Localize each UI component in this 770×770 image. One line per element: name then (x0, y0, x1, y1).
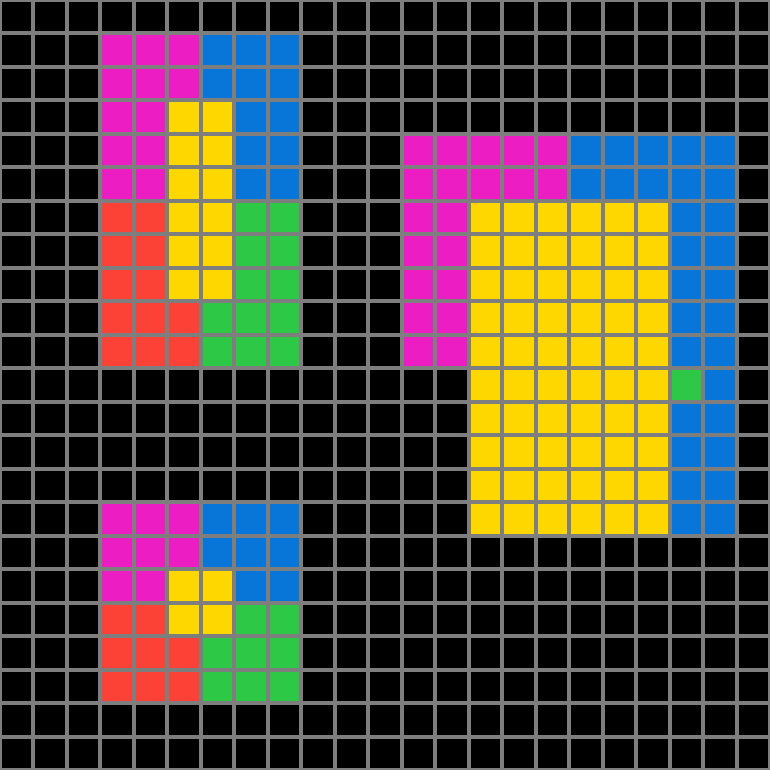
grid-cell[interactable] (270, 638, 299, 667)
grid-cell[interactable] (303, 270, 332, 299)
grid-cell[interactable] (270, 471, 299, 500)
grid-cell[interactable] (638, 538, 667, 567)
grid-cell[interactable] (337, 571, 366, 600)
grid-cell[interactable] (538, 303, 567, 332)
grid-cell[interactable] (136, 69, 165, 98)
grid-cell[interactable] (605, 471, 634, 500)
grid-cell[interactable] (605, 136, 634, 165)
grid-cell[interactable] (538, 404, 567, 433)
grid-cell[interactable] (571, 370, 600, 399)
grid-cell[interactable] (2, 236, 31, 265)
grid-cell[interactable] (638, 35, 667, 64)
grid-cell[interactable] (705, 337, 734, 366)
grid-cell[interactable] (236, 605, 265, 634)
grid-cell[interactable] (337, 35, 366, 64)
grid-cell[interactable] (169, 35, 198, 64)
grid-cell[interactable] (370, 638, 399, 667)
grid-cell[interactable] (404, 2, 433, 31)
grid-cell[interactable] (102, 638, 131, 667)
grid-cell[interactable] (672, 504, 701, 533)
grid-cell[interactable] (35, 2, 64, 31)
grid-cell[interactable] (638, 705, 667, 734)
grid-cell[interactable] (571, 437, 600, 466)
grid-cell[interactable] (2, 370, 31, 399)
grid-cell[interactable] (203, 437, 232, 466)
grid-cell[interactable] (303, 739, 332, 768)
grid-cell[interactable] (102, 538, 131, 567)
grid-cell[interactable] (404, 605, 433, 634)
grid-cell[interactable] (538, 337, 567, 366)
grid-cell[interactable] (203, 571, 232, 600)
grid-cell[interactable] (471, 370, 500, 399)
grid-cell[interactable] (672, 571, 701, 600)
grid-cell[interactable] (236, 638, 265, 667)
grid-cell[interactable] (471, 471, 500, 500)
grid-cell[interactable] (169, 236, 198, 265)
grid-cell[interactable] (571, 2, 600, 31)
grid-cell[interactable] (404, 739, 433, 768)
grid-cell[interactable] (69, 303, 98, 332)
grid-cell[interactable] (739, 337, 768, 366)
grid-cell[interactable] (236, 337, 265, 366)
grid-cell[interactable] (404, 504, 433, 533)
grid-cell[interactable] (404, 102, 433, 131)
grid-cell[interactable] (672, 35, 701, 64)
grid-cell[interactable] (102, 303, 131, 332)
grid-cell[interactable] (35, 270, 64, 299)
grid-cell[interactable] (437, 739, 466, 768)
grid-cell[interactable] (370, 739, 399, 768)
grid-cell[interactable] (571, 35, 600, 64)
grid-cell[interactable] (35, 404, 64, 433)
grid-cell[interactable] (236, 404, 265, 433)
grid-cell[interactable] (203, 504, 232, 533)
grid-cell[interactable] (638, 69, 667, 98)
grid-cell[interactable] (739, 739, 768, 768)
grid-cell[interactable] (169, 739, 198, 768)
grid-cell[interactable] (370, 203, 399, 232)
grid-cell[interactable] (337, 337, 366, 366)
grid-cell[interactable] (35, 236, 64, 265)
grid-cell[interactable] (203, 538, 232, 567)
grid-cell[interactable] (504, 203, 533, 232)
grid-cell[interactable] (337, 270, 366, 299)
grid-cell[interactable] (270, 571, 299, 600)
grid-cell[interactable] (236, 538, 265, 567)
grid-cell[interactable] (538, 739, 567, 768)
grid-cell[interactable] (538, 538, 567, 567)
grid-cell[interactable] (605, 437, 634, 466)
grid-cell[interactable] (638, 605, 667, 634)
grid-cell[interactable] (638, 236, 667, 265)
grid-cell[interactable] (69, 236, 98, 265)
grid-cell[interactable] (136, 102, 165, 131)
grid-cell[interactable] (169, 2, 198, 31)
grid-cell[interactable] (203, 2, 232, 31)
grid-cell[interactable] (303, 605, 332, 634)
grid-cell[interactable] (270, 504, 299, 533)
grid-cell[interactable] (538, 102, 567, 131)
grid-cell[interactable] (236, 303, 265, 332)
grid-cell[interactable] (169, 437, 198, 466)
grid-cell[interactable] (35, 739, 64, 768)
grid-cell[interactable] (69, 136, 98, 165)
grid-cell[interactable] (35, 538, 64, 567)
grid-cell[interactable] (705, 203, 734, 232)
grid-cell[interactable] (203, 605, 232, 634)
grid-cell[interactable] (739, 404, 768, 433)
grid-cell[interactable] (437, 471, 466, 500)
grid-cell[interactable] (236, 270, 265, 299)
grid-cell[interactable] (169, 169, 198, 198)
grid-cell[interactable] (370, 69, 399, 98)
grid-cell[interactable] (672, 638, 701, 667)
grid-cell[interactable] (169, 337, 198, 366)
grid-cell[interactable] (370, 404, 399, 433)
grid-cell[interactable] (437, 136, 466, 165)
grid-cell[interactable] (538, 471, 567, 500)
grid-cell[interactable] (370, 169, 399, 198)
grid-cell[interactable] (303, 337, 332, 366)
grid-cell[interactable] (102, 236, 131, 265)
grid-cell[interactable] (638, 337, 667, 366)
grid-cell[interactable] (2, 35, 31, 64)
grid-cell[interactable] (35, 471, 64, 500)
grid-cell[interactable] (2, 605, 31, 634)
grid-cell[interactable] (303, 705, 332, 734)
grid-cell[interactable] (471, 2, 500, 31)
grid-cell[interactable] (169, 504, 198, 533)
grid-cell[interactable] (705, 739, 734, 768)
grid-cell[interactable] (404, 35, 433, 64)
grid-cell[interactable] (404, 69, 433, 98)
grid-cell[interactable] (571, 571, 600, 600)
grid-cell[interactable] (605, 69, 634, 98)
grid-cell[interactable] (236, 203, 265, 232)
grid-cell[interactable] (102, 337, 131, 366)
grid-cell[interactable] (571, 236, 600, 265)
grid-cell[interactable] (370, 437, 399, 466)
grid-cell[interactable] (303, 471, 332, 500)
grid-cell[interactable] (69, 404, 98, 433)
grid-cell[interactable] (337, 404, 366, 433)
grid-cell[interactable] (672, 538, 701, 567)
grid-cell[interactable] (169, 102, 198, 131)
grid-cell[interactable] (337, 370, 366, 399)
grid-cell[interactable] (69, 504, 98, 533)
grid-cell[interactable] (571, 203, 600, 232)
grid-cell[interactable] (504, 337, 533, 366)
grid-cell[interactable] (69, 69, 98, 98)
grid-cell[interactable] (739, 102, 768, 131)
grid-cell[interactable] (739, 605, 768, 634)
grid-cell[interactable] (739, 136, 768, 165)
grid-cell[interactable] (35, 672, 64, 701)
grid-cell[interactable] (504, 69, 533, 98)
grid-cell[interactable] (605, 337, 634, 366)
grid-cell[interactable] (337, 136, 366, 165)
grid-cell[interactable] (136, 370, 165, 399)
grid-cell[interactable] (705, 404, 734, 433)
grid-cell[interactable] (538, 136, 567, 165)
grid-cell[interactable] (370, 270, 399, 299)
grid-cell[interactable] (35, 337, 64, 366)
grid-cell[interactable] (203, 102, 232, 131)
grid-cell[interactable] (102, 2, 131, 31)
grid-cell[interactable] (303, 404, 332, 433)
grid-cell[interactable] (270, 739, 299, 768)
grid-cell[interactable] (136, 605, 165, 634)
grid-cell[interactable] (571, 303, 600, 332)
grid-cell[interactable] (605, 638, 634, 667)
grid-cell[interactable] (538, 504, 567, 533)
grid-cell[interactable] (705, 136, 734, 165)
grid-cell[interactable] (2, 337, 31, 366)
grid-cell[interactable] (705, 638, 734, 667)
grid-cell[interactable] (236, 504, 265, 533)
grid-cell[interactable] (705, 370, 734, 399)
grid-cell[interactable] (303, 69, 332, 98)
grid-cell[interactable] (471, 638, 500, 667)
grid-cell[interactable] (504, 672, 533, 701)
grid-cell[interactable] (370, 236, 399, 265)
grid-cell[interactable] (471, 203, 500, 232)
grid-cell[interactable] (605, 739, 634, 768)
grid-cell[interactable] (102, 270, 131, 299)
grid-cell[interactable] (69, 437, 98, 466)
grid-cell[interactable] (538, 236, 567, 265)
grid-cell[interactable] (471, 605, 500, 634)
grid-cell[interactable] (605, 270, 634, 299)
grid-cell[interactable] (370, 2, 399, 31)
grid-cell[interactable] (270, 2, 299, 31)
grid-cell[interactable] (169, 605, 198, 634)
grid-cell[interactable] (337, 303, 366, 332)
grid-cell[interactable] (136, 571, 165, 600)
grid-cell[interactable] (437, 303, 466, 332)
grid-cell[interactable] (672, 203, 701, 232)
grid-cell[interactable] (69, 605, 98, 634)
grid-cell[interactable] (35, 136, 64, 165)
grid-cell[interactable] (571, 102, 600, 131)
grid-cell[interactable] (471, 35, 500, 64)
grid-cell[interactable] (169, 471, 198, 500)
grid-cell[interactable] (2, 672, 31, 701)
grid-cell[interactable] (437, 705, 466, 734)
grid-cell[interactable] (136, 169, 165, 198)
grid-cell[interactable] (169, 672, 198, 701)
grid-cell[interactable] (169, 370, 198, 399)
grid-cell[interactable] (404, 370, 433, 399)
grid-cell[interactable] (672, 672, 701, 701)
grid-cell[interactable] (672, 705, 701, 734)
grid-cell[interactable] (739, 638, 768, 667)
grid-cell[interactable] (337, 437, 366, 466)
grid-cell[interactable] (638, 203, 667, 232)
grid-cell[interactable] (370, 672, 399, 701)
grid-cell[interactable] (605, 370, 634, 399)
grid-cell[interactable] (739, 571, 768, 600)
grid-cell[interactable] (370, 102, 399, 131)
grid-cell[interactable] (203, 672, 232, 701)
grid-cell[interactable] (705, 236, 734, 265)
grid-cell[interactable] (672, 471, 701, 500)
grid-cell[interactable] (571, 672, 600, 701)
grid-cell[interactable] (102, 705, 131, 734)
grid-cell[interactable] (236, 672, 265, 701)
grid-cell[interactable] (504, 35, 533, 64)
grid-cell[interactable] (605, 504, 634, 533)
grid-cell[interactable] (437, 236, 466, 265)
grid-cell[interactable] (169, 705, 198, 734)
grid-cell[interactable] (136, 203, 165, 232)
grid-cell[interactable] (370, 337, 399, 366)
grid-cell[interactable] (437, 2, 466, 31)
grid-cell[interactable] (638, 471, 667, 500)
grid-cell[interactable] (504, 404, 533, 433)
grid-cell[interactable] (203, 236, 232, 265)
grid-cell[interactable] (35, 102, 64, 131)
grid-cell[interactable] (605, 2, 634, 31)
grid-cell[interactable] (404, 672, 433, 701)
grid-cell[interactable] (471, 571, 500, 600)
grid-cell[interactable] (337, 638, 366, 667)
grid-cell[interactable] (504, 370, 533, 399)
grid-cell[interactable] (672, 337, 701, 366)
grid-cell[interactable] (203, 337, 232, 366)
grid-cell[interactable] (538, 270, 567, 299)
grid-cell[interactable] (605, 35, 634, 64)
grid-cell[interactable] (705, 169, 734, 198)
grid-cell[interactable] (739, 504, 768, 533)
grid-cell[interactable] (203, 471, 232, 500)
grid-cell[interactable] (538, 370, 567, 399)
grid-cell[interactable] (69, 739, 98, 768)
grid-cell[interactable] (404, 303, 433, 332)
grid-cell[interactable] (2, 136, 31, 165)
grid-cell[interactable] (571, 705, 600, 734)
grid-cell[interactable] (270, 672, 299, 701)
grid-cell[interactable] (571, 136, 600, 165)
grid-cell[interactable] (638, 739, 667, 768)
grid-cell[interactable] (337, 169, 366, 198)
grid-cell[interactable] (303, 672, 332, 701)
grid-cell[interactable] (404, 337, 433, 366)
grid-cell[interactable] (270, 437, 299, 466)
grid-cell[interactable] (404, 437, 433, 466)
grid-cell[interactable] (471, 739, 500, 768)
grid-cell[interactable] (638, 638, 667, 667)
grid-cell[interactable] (705, 471, 734, 500)
grid-cell[interactable] (69, 2, 98, 31)
grid-cell[interactable] (69, 571, 98, 600)
grid-cell[interactable] (705, 571, 734, 600)
grid-cell[interactable] (370, 504, 399, 533)
grid-cell[interactable] (437, 35, 466, 64)
grid-cell[interactable] (203, 203, 232, 232)
grid-cell[interactable] (739, 270, 768, 299)
grid-cell[interactable] (504, 303, 533, 332)
grid-cell[interactable] (2, 705, 31, 734)
grid-cell[interactable] (69, 538, 98, 567)
grid-cell[interactable] (504, 605, 533, 634)
grid-cell[interactable] (638, 102, 667, 131)
grid-cell[interactable] (35, 638, 64, 667)
grid-cell[interactable] (303, 236, 332, 265)
grid-cell[interactable] (504, 638, 533, 667)
grid-cell[interactable] (538, 605, 567, 634)
grid-cell[interactable] (437, 638, 466, 667)
grid-cell[interactable] (337, 739, 366, 768)
grid-cell[interactable] (203, 35, 232, 64)
grid-cell[interactable] (437, 672, 466, 701)
grid-cell[interactable] (471, 404, 500, 433)
grid-cell[interactable] (370, 303, 399, 332)
grid-cell[interactable] (571, 69, 600, 98)
grid-cell[interactable] (303, 638, 332, 667)
grid-cell[interactable] (303, 370, 332, 399)
grid-cell[interactable] (2, 638, 31, 667)
grid-cell[interactable] (136, 303, 165, 332)
grid-cell[interactable] (504, 2, 533, 31)
grid-cell[interactable] (102, 69, 131, 98)
grid-cell[interactable] (337, 203, 366, 232)
grid-cell[interactable] (571, 538, 600, 567)
grid-cell[interactable] (35, 69, 64, 98)
grid-cell[interactable] (169, 404, 198, 433)
grid-cell[interactable] (571, 270, 600, 299)
grid-cell[interactable] (337, 69, 366, 98)
grid-cell[interactable] (2, 270, 31, 299)
grid-cell[interactable] (605, 169, 634, 198)
grid-cell[interactable] (337, 236, 366, 265)
grid-cell[interactable] (638, 169, 667, 198)
grid-cell[interactable] (69, 370, 98, 399)
grid-cell[interactable] (638, 404, 667, 433)
grid-cell[interactable] (270, 35, 299, 64)
grid-cell[interactable] (69, 672, 98, 701)
grid-cell[interactable] (69, 705, 98, 734)
grid-cell[interactable] (705, 504, 734, 533)
grid-cell[interactable] (437, 538, 466, 567)
grid-cell[interactable] (504, 705, 533, 734)
grid-cell[interactable] (370, 136, 399, 165)
grid-cell[interactable] (236, 739, 265, 768)
grid-cell[interactable] (270, 169, 299, 198)
grid-cell[interactable] (35, 705, 64, 734)
grid-cell[interactable] (35, 35, 64, 64)
grid-cell[interactable] (404, 136, 433, 165)
grid-cell[interactable] (203, 303, 232, 332)
grid-cell[interactable] (672, 136, 701, 165)
pixel-grid[interactable] (0, 0, 770, 770)
grid-cell[interactable] (270, 102, 299, 131)
grid-cell[interactable] (69, 102, 98, 131)
grid-cell[interactable] (471, 504, 500, 533)
grid-cell[interactable] (270, 370, 299, 399)
grid-cell[interactable] (236, 437, 265, 466)
grid-cell[interactable] (236, 571, 265, 600)
grid-cell[interactable] (404, 538, 433, 567)
grid-cell[interactable] (739, 370, 768, 399)
grid-cell[interactable] (404, 236, 433, 265)
grid-cell[interactable] (303, 136, 332, 165)
grid-cell[interactable] (437, 437, 466, 466)
grid-cell[interactable] (437, 102, 466, 131)
grid-cell[interactable] (270, 236, 299, 265)
grid-cell[interactable] (638, 136, 667, 165)
grid-cell[interactable] (69, 270, 98, 299)
